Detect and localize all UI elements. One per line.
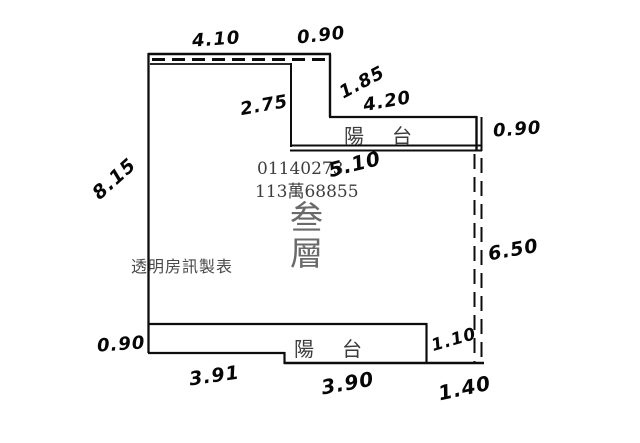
- floor-label: 叁層: [288, 200, 325, 272]
- dimension-upper-balcony-height: 0.90: [492, 117, 542, 141]
- dimension-lower-balcony-height: 0.90: [96, 332, 146, 356]
- lower-balcony-label: 陽台: [294, 333, 390, 362]
- floor-plan-page: 01140273 113萬68855 叁層 透明房訊製表 陽台 陽台 4.10 …: [0, 0, 640, 443]
- watermark-text: 透明房訊製表: [131, 253, 233, 277]
- upper-balcony-label: 陽台: [344, 120, 440, 149]
- dimension-top-width: 4.10: [191, 27, 241, 51]
